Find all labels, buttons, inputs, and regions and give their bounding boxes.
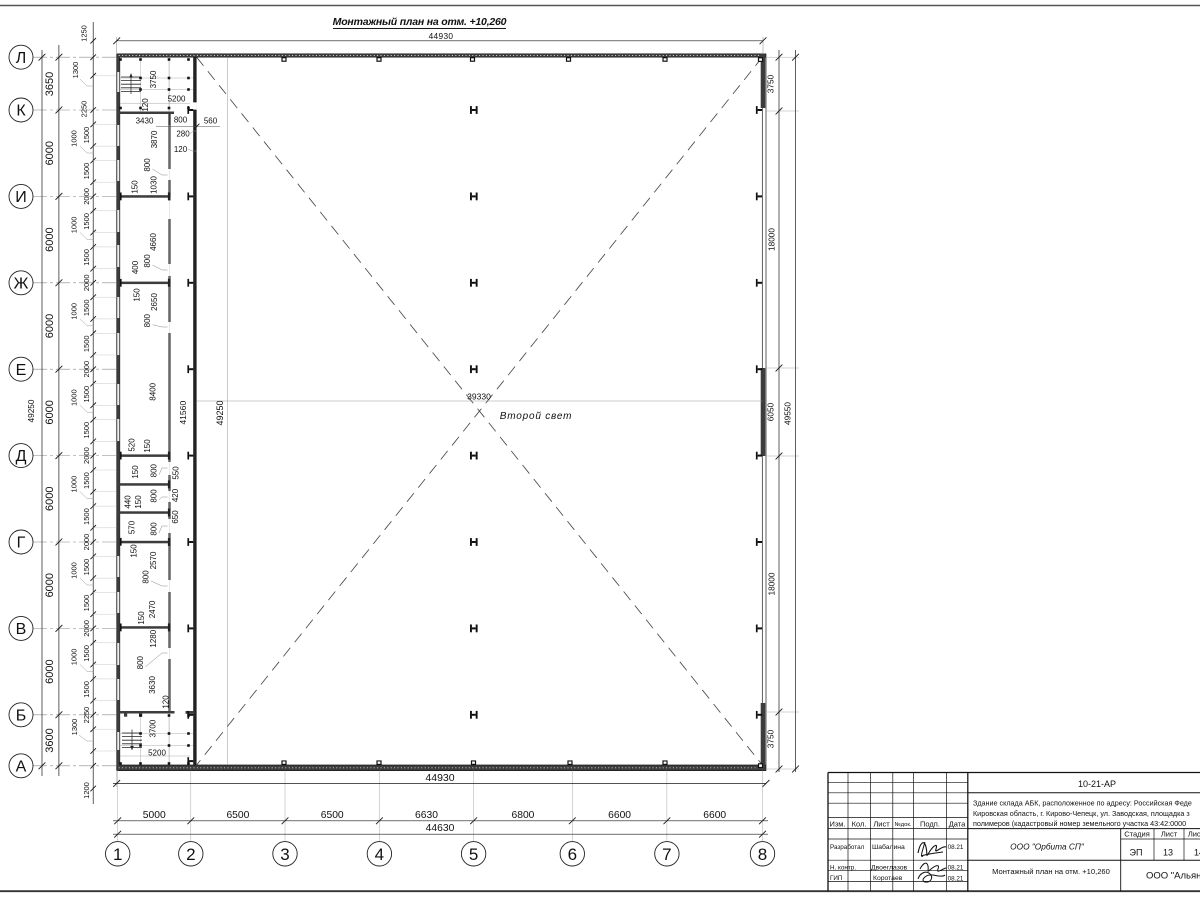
svg-text:5200: 5200 <box>148 749 166 758</box>
svg-text:1000: 1000 <box>70 130 79 147</box>
svg-text:1500: 1500 <box>82 472 91 489</box>
svg-text:4: 4 <box>375 845 384 864</box>
svg-text:1500: 1500 <box>82 249 91 266</box>
svg-text:1500: 1500 <box>82 508 91 525</box>
svg-text:1000: 1000 <box>70 649 79 666</box>
svg-text:150: 150 <box>130 180 139 194</box>
svg-text:1500: 1500 <box>82 645 91 662</box>
svg-text:440: 440 <box>124 495 133 509</box>
svg-text:150: 150 <box>143 439 152 453</box>
svg-text:4660: 4660 <box>149 233 158 251</box>
svg-text:Н. контр.: Н. контр. <box>830 864 856 871</box>
svg-text:2650: 2650 <box>150 293 159 311</box>
svg-text:1300: 1300 <box>70 719 79 736</box>
svg-text:1500: 1500 <box>82 163 91 180</box>
svg-text:К: К <box>16 103 26 120</box>
svg-text:150: 150 <box>130 544 139 558</box>
svg-text:1500: 1500 <box>82 335 91 352</box>
svg-text:1200: 1200 <box>82 782 91 799</box>
svg-text:5000: 5000 <box>143 810 166 821</box>
svg-text:Подп.: Подп. <box>920 819 940 828</box>
svg-text:1500: 1500 <box>82 422 91 439</box>
svg-text:6600: 6600 <box>608 810 631 821</box>
svg-text:В: В <box>16 621 27 638</box>
svg-text:5200: 5200 <box>168 95 186 104</box>
svg-text:Изм.: Изм. <box>829 819 845 828</box>
svg-text:Стадия: Стадия <box>1124 830 1150 839</box>
svg-text:1000: 1000 <box>70 476 79 493</box>
svg-text:8400: 8400 <box>149 382 158 400</box>
svg-text:Ж: Ж <box>14 275 29 292</box>
svg-text:08.21: 08.21 <box>948 875 964 882</box>
svg-text:1280: 1280 <box>149 629 158 647</box>
svg-text:800: 800 <box>150 463 159 477</box>
svg-text:1500: 1500 <box>82 595 91 612</box>
svg-text:Коротаев: Коротаев <box>873 875 903 882</box>
svg-text:Монтажный план на отм. +10,260: Монтажный план на отм. +10,260 <box>992 867 1110 876</box>
svg-text:800: 800 <box>136 655 145 669</box>
svg-text:41560: 41560 <box>178 401 188 425</box>
svg-text:49250: 49250 <box>26 399 36 422</box>
svg-text:49550: 49550 <box>783 402 793 425</box>
svg-text:6000: 6000 <box>44 400 56 424</box>
svg-text:1030: 1030 <box>150 176 159 194</box>
svg-text:3: 3 <box>280 845 289 864</box>
svg-text:08.21: 08.21 <box>948 844 964 851</box>
svg-text:1250: 1250 <box>80 25 89 42</box>
svg-text:6050: 6050 <box>766 402 776 421</box>
svg-text:6000: 6000 <box>44 659 56 683</box>
svg-text:49250: 49250 <box>215 400 225 425</box>
svg-text:1500: 1500 <box>82 386 91 403</box>
svg-text:7: 7 <box>662 845 671 864</box>
svg-text:14: 14 <box>1194 848 1200 858</box>
svg-text:Кол.: Кол. <box>852 819 867 828</box>
svg-text:Разработал: Разработал <box>830 843 865 851</box>
svg-text:2000: 2000 <box>82 447 91 464</box>
svg-text:6000: 6000 <box>44 573 56 597</box>
svg-text:8: 8 <box>758 845 767 864</box>
svg-text:120: 120 <box>162 695 171 709</box>
svg-text:3750: 3750 <box>149 70 158 88</box>
svg-text:Второй свет: Второй свет <box>500 411 573 422</box>
svg-text:13: 13 <box>1163 848 1173 858</box>
svg-text:Дата: Дата <box>949 819 966 828</box>
svg-text:1: 1 <box>113 845 122 864</box>
svg-text:150: 150 <box>133 288 142 302</box>
svg-text:№док.: №док. <box>895 822 912 828</box>
svg-text:6800: 6800 <box>511 810 534 821</box>
svg-text:400: 400 <box>131 260 140 274</box>
svg-text:1000: 1000 <box>70 303 79 320</box>
svg-text:800: 800 <box>150 489 159 503</box>
svg-text:420: 420 <box>171 488 180 502</box>
svg-text:3700: 3700 <box>149 719 158 737</box>
svg-text:44930: 44930 <box>429 31 454 41</box>
svg-text:800: 800 <box>142 570 151 584</box>
svg-text:44930: 44930 <box>425 772 454 784</box>
svg-text:18000: 18000 <box>767 572 777 595</box>
svg-text:5: 5 <box>469 845 478 864</box>
svg-text:39330: 39330 <box>467 391 491 401</box>
svg-text:ООО "Орбита СП": ООО "Орбита СП" <box>1010 842 1085 852</box>
svg-text:10-21-АР: 10-21-АР <box>1078 779 1116 789</box>
svg-text:И: И <box>15 189 27 206</box>
svg-text:1500: 1500 <box>82 559 91 576</box>
svg-text:Д: Д <box>16 448 27 465</box>
svg-text:520: 520 <box>128 438 137 452</box>
svg-text:3430: 3430 <box>136 117 154 126</box>
svg-text:6000: 6000 <box>44 487 56 511</box>
svg-text:2470: 2470 <box>148 600 157 618</box>
svg-text:800: 800 <box>174 116 188 125</box>
svg-text:150: 150 <box>131 465 140 479</box>
svg-text:6000: 6000 <box>44 141 56 165</box>
svg-text:Листов: Листов <box>1188 830 1200 839</box>
svg-text:Г: Г <box>17 535 26 552</box>
svg-text:2000: 2000 <box>82 361 91 378</box>
svg-text:1000: 1000 <box>70 217 79 234</box>
svg-text:Двоеглазов: Двоеглазов <box>871 864 908 871</box>
svg-text:Шабалина: Шабалина <box>872 843 905 851</box>
svg-text:2000: 2000 <box>82 620 91 637</box>
svg-text:550: 550 <box>172 466 181 480</box>
svg-text:6600: 6600 <box>703 810 726 821</box>
svg-text:2250: 2250 <box>82 707 91 724</box>
svg-text:800: 800 <box>143 254 152 268</box>
svg-text:800: 800 <box>143 158 152 172</box>
svg-text:1300: 1300 <box>71 62 80 79</box>
svg-text:44630: 44630 <box>426 823 455 834</box>
svg-text:6000: 6000 <box>44 227 56 251</box>
svg-text:800: 800 <box>150 522 159 536</box>
svg-text:6000: 6000 <box>44 314 56 338</box>
svg-text:3750: 3750 <box>766 74 776 93</box>
svg-text:Л: Л <box>16 50 27 67</box>
svg-text:1500: 1500 <box>82 299 91 316</box>
svg-text:3600: 3600 <box>44 728 56 752</box>
svg-text:ГИП: ГИП <box>830 875 843 882</box>
svg-text:2250: 2250 <box>80 101 89 118</box>
svg-text:800: 800 <box>143 313 152 327</box>
svg-text:Лист: Лист <box>873 819 890 828</box>
svg-text:6500: 6500 <box>226 810 249 821</box>
svg-text:Б: Б <box>16 707 27 724</box>
svg-text:2: 2 <box>186 845 195 864</box>
svg-text:18000: 18000 <box>767 228 777 251</box>
svg-text:1000: 1000 <box>70 562 79 579</box>
svg-text:08.21: 08.21 <box>948 865 964 872</box>
svg-text:560: 560 <box>204 117 218 126</box>
svg-text:1500: 1500 <box>82 213 91 230</box>
svg-text:Е: Е <box>16 362 27 379</box>
svg-text:полимеров (кадастровый номер з: полимеров (кадастровый номер земельного … <box>973 819 1186 828</box>
svg-text:280: 280 <box>176 130 190 139</box>
svg-text:1500: 1500 <box>82 681 91 698</box>
svg-text:Лист: Лист <box>1161 830 1178 839</box>
svg-text:6630: 6630 <box>415 810 438 821</box>
svg-text:А: А <box>16 758 27 775</box>
svg-text:2000: 2000 <box>82 274 91 291</box>
svg-text:ООО "Альянс: ООО "Альянс <box>1146 871 1200 882</box>
svg-text:120: 120 <box>141 98 150 112</box>
svg-text:2570: 2570 <box>149 551 158 569</box>
svg-text:650: 650 <box>171 510 180 524</box>
svg-text:1500: 1500 <box>82 127 91 144</box>
svg-text:150: 150 <box>137 611 146 625</box>
svg-text:3650: 3650 <box>44 72 56 96</box>
svg-text:120: 120 <box>174 145 188 154</box>
svg-text:6500: 6500 <box>321 810 344 821</box>
svg-text:Здание склада АБК, расположенн: Здание склада АБК, расположенное по адре… <box>973 799 1192 808</box>
svg-text:6: 6 <box>568 845 577 864</box>
svg-text:3870: 3870 <box>150 130 159 148</box>
svg-text:3750: 3750 <box>766 729 776 748</box>
svg-text:1000: 1000 <box>70 389 79 406</box>
svg-text:Монтажный план на отм. +10,260: Монтажный план на отм. +10,260 <box>333 16 507 28</box>
svg-text:150: 150 <box>134 495 143 509</box>
svg-text:ЭП: ЭП <box>1130 848 1143 858</box>
svg-text:2000: 2000 <box>82 188 91 205</box>
svg-text:Кировская область, г. Кирово-Ч: Кировская область, г. Кирово-Чепецк, ул.… <box>973 809 1190 818</box>
svg-text:3630: 3630 <box>148 676 157 694</box>
svg-text:570: 570 <box>128 520 137 534</box>
svg-text:2000: 2000 <box>82 534 91 551</box>
